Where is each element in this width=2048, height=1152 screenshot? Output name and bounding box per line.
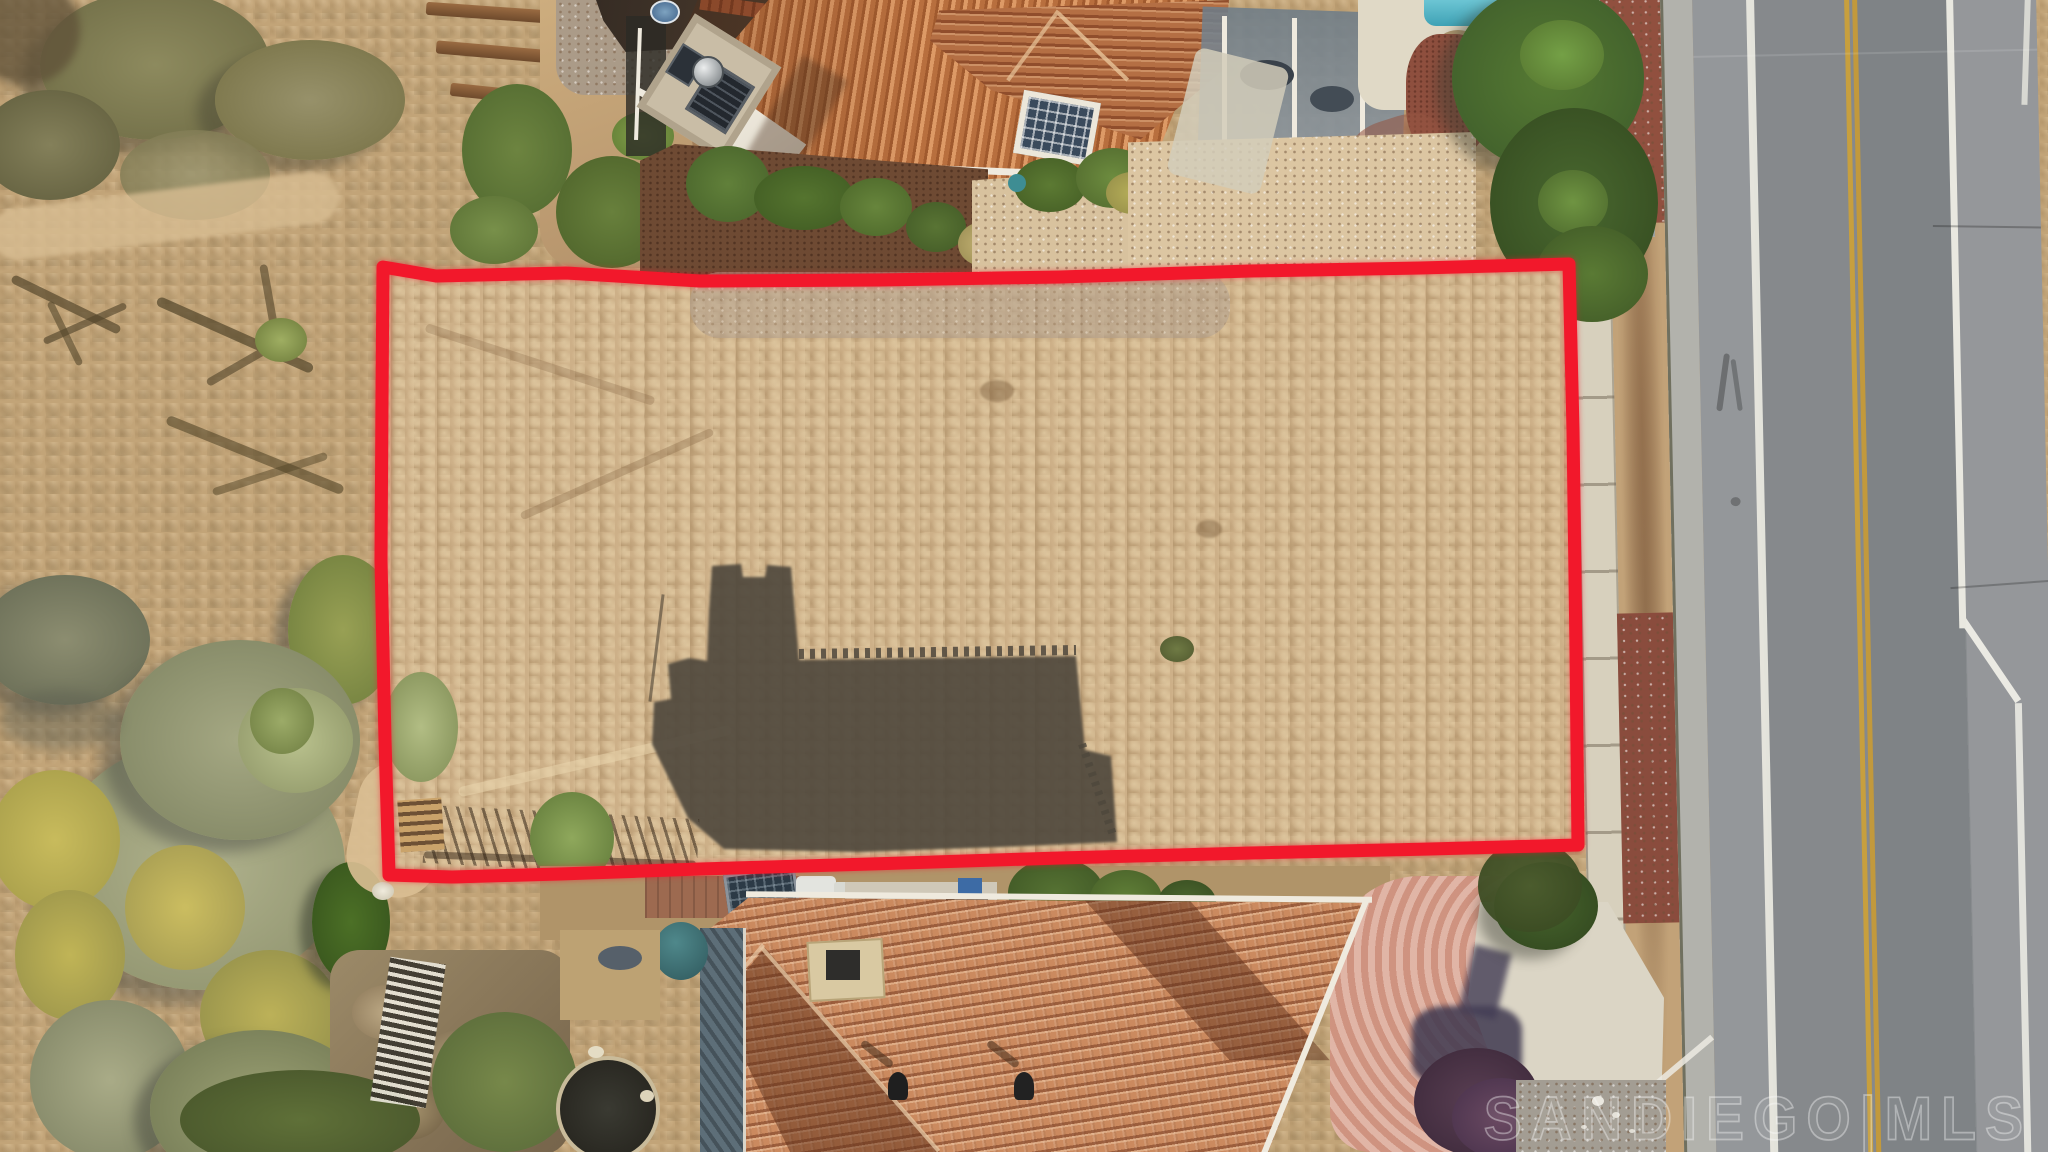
mls-watermark: SANDIEGO|MLS	[1484, 1083, 2032, 1152]
yucca-plant	[250, 688, 314, 754]
roof-finial-lantern	[1014, 1072, 1034, 1100]
tree-highlight	[1520, 20, 1604, 90]
tree-highlight	[1538, 170, 1608, 234]
lot-debris	[980, 380, 1014, 402]
patio-ground	[560, 930, 660, 1020]
chimney-flue-opening	[826, 950, 860, 980]
yucca-plant	[384, 672, 458, 782]
patio-furniture	[598, 946, 642, 970]
lot-debris	[1196, 520, 1222, 538]
white-rock	[372, 882, 394, 900]
roof-finial-lantern	[888, 1072, 908, 1100]
corner-bush	[1478, 840, 1582, 932]
blue-bin	[958, 878, 982, 894]
metal-awning	[700, 928, 746, 1152]
aerial-photo: SANDIEGO|MLS	[0, 0, 2048, 1152]
patio-umbrella	[654, 922, 708, 980]
rubble-strip	[690, 272, 1230, 338]
wood-steps	[397, 798, 445, 853]
small-bush-in-lot	[1160, 636, 1194, 662]
red-gravel-parkway	[1617, 612, 1679, 923]
